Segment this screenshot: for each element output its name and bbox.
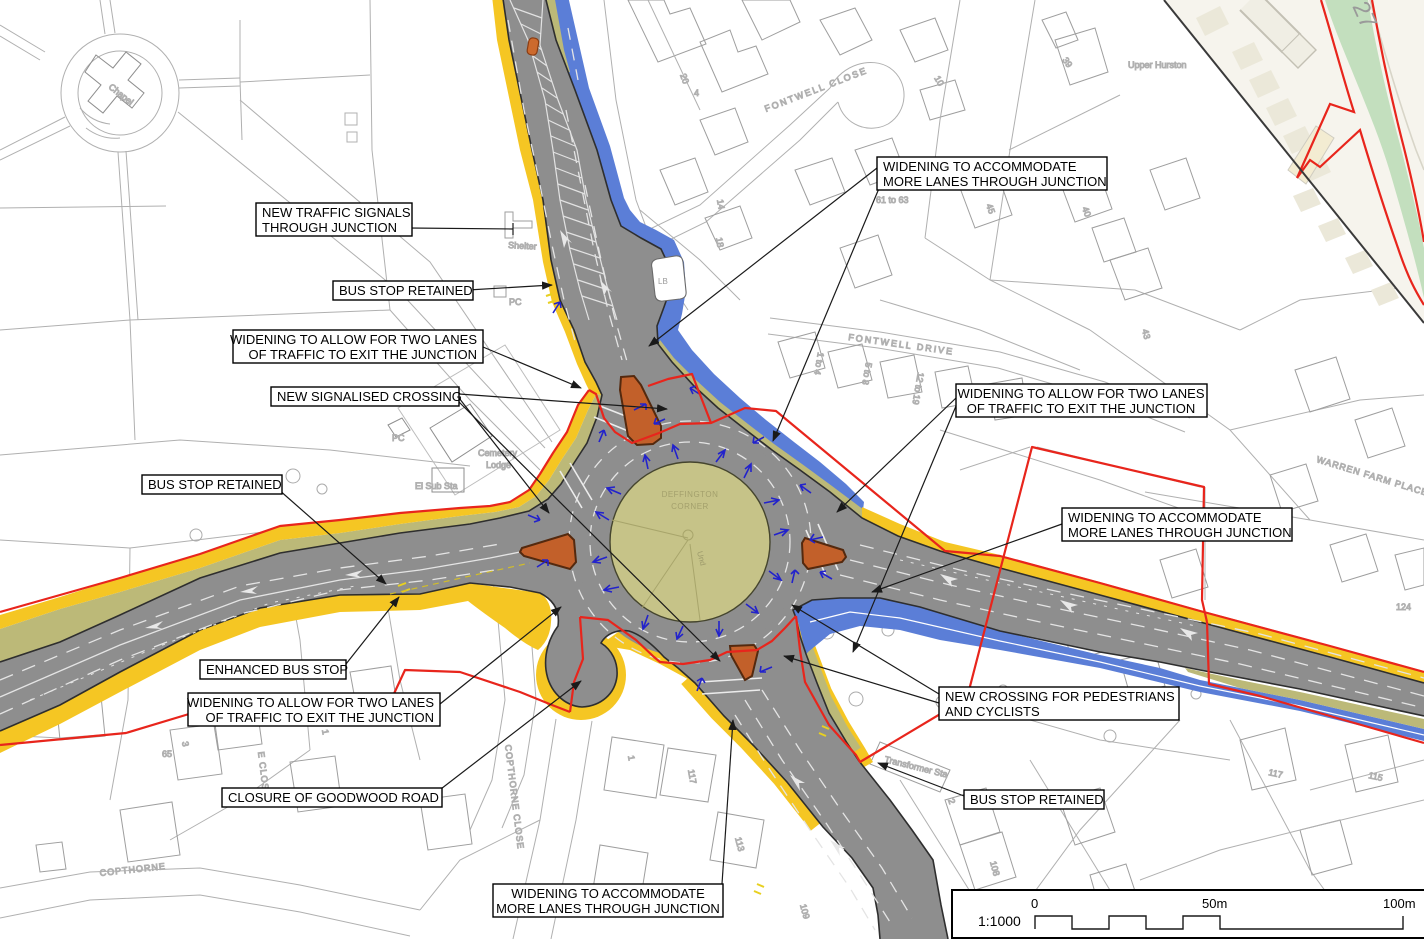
svg-text:Upper Hurston: Upper Hurston <box>1128 60 1187 70</box>
svg-text:El Sub Sta: El Sub Sta <box>415 481 458 491</box>
svg-text:0: 0 <box>1031 896 1038 911</box>
svg-text:NEW CROSSING FOR PEDESTRIANS: NEW CROSSING FOR PEDESTRIANS <box>945 689 1175 704</box>
svg-text:124: 124 <box>1396 602 1411 612</box>
svg-text:WIDENING TO ACCOMMODATE: WIDENING TO ACCOMMODATE <box>883 159 1077 174</box>
svg-text:CORNER: CORNER <box>671 502 709 511</box>
svg-text:OF TRAFFIC TO EXIT THE JUNCTIO: OF TRAFFIC TO EXIT THE JUNCTION <box>206 710 434 725</box>
svg-text:BUS STOP RETAINED: BUS STOP RETAINED <box>970 792 1104 807</box>
svg-text:WIDENING TO ALLOW FOR TWO LANE: WIDENING TO ALLOW FOR TWO LANES <box>187 695 434 710</box>
svg-text:Lodge: Lodge <box>486 460 511 470</box>
svg-text:WIDENING TO ACCOMMODATE: WIDENING TO ACCOMMODATE <box>1068 510 1262 525</box>
svg-text:DEFFINGTON: DEFFINGTON <box>662 490 719 499</box>
svg-text:NEW SIGNALISED CROSSING: NEW SIGNALISED CROSSING <box>277 389 462 404</box>
svg-text:WIDENING TO ACCOMMODATE: WIDENING TO ACCOMMODATE <box>511 886 705 901</box>
svg-text:WIDENING TO ALLOW FOR TWO LANE: WIDENING TO ALLOW FOR TWO LANES <box>957 386 1204 401</box>
svg-text:Shelter: Shelter <box>508 240 537 251</box>
svg-text:BUS STOP RETAINED: BUS STOP RETAINED <box>148 477 282 492</box>
svg-text:AND CYCLISTS: AND CYCLISTS <box>945 704 1040 719</box>
svg-text:PC: PC <box>392 433 405 443</box>
svg-text:THROUGH JUNCTION: THROUGH JUNCTION <box>262 220 397 235</box>
svg-text:Cemetery: Cemetery <box>478 448 518 458</box>
svg-text:4: 4 <box>694 88 699 98</box>
svg-text:1:1000: 1:1000 <box>978 913 1021 929</box>
svg-text:MORE LANES THROUGH JUNCTION: MORE LANES THROUGH JUNCTION <box>1068 525 1292 540</box>
svg-text:MORE LANES THROUGH JUNCTION: MORE LANES THROUGH JUNCTION <box>496 901 720 916</box>
svg-text:BUS STOP RETAINED: BUS STOP RETAINED <box>339 283 473 298</box>
svg-text:OF TRAFFIC TO EXIT THE JUNCTIO: OF TRAFFIC TO EXIT THE JUNCTION <box>249 347 477 362</box>
svg-text:MORE LANES THROUGH JUNCTION: MORE LANES THROUGH JUNCTION <box>883 174 1107 189</box>
svg-text:100m: 100m <box>1383 896 1416 911</box>
svg-text:50m: 50m <box>1202 896 1227 911</box>
svg-text:LB: LB <box>658 277 668 286</box>
svg-text:14: 14 <box>715 199 727 211</box>
svg-text:WIDENING TO ALLOW FOR TWO LANE: WIDENING TO ALLOW FOR TWO LANES <box>230 332 477 347</box>
svg-text:CLOSURE OF GOODWOOD ROAD: CLOSURE OF GOODWOOD ROAD <box>228 790 439 805</box>
svg-text:NEW TRAFFIC SIGNALS: NEW TRAFFIC SIGNALS <box>262 205 411 220</box>
svg-text:61 to 63: 61 to 63 <box>876 195 909 205</box>
svg-text:65: 65 <box>162 749 172 759</box>
svg-text:PC: PC <box>509 297 522 307</box>
svg-text:18: 18 <box>714 237 726 249</box>
svg-text:OF TRAFFIC TO EXIT THE JUNCTIO: OF TRAFFIC TO EXIT THE JUNCTION <box>967 401 1195 416</box>
svg-text:ENHANCED BUS STOP: ENHANCED BUS STOP <box>206 662 348 677</box>
